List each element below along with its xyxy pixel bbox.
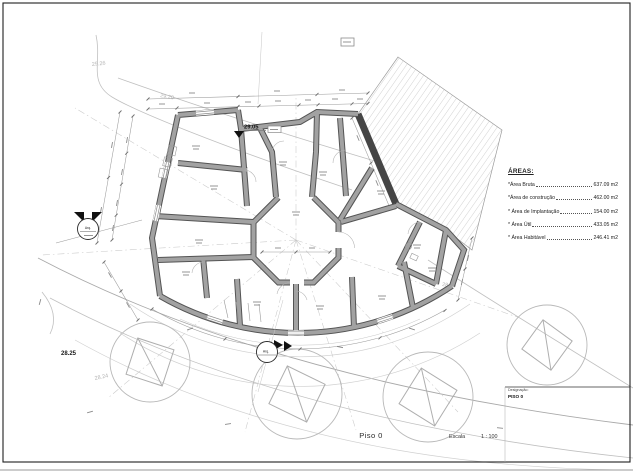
spot-elevation-label: 28.25	[61, 351, 77, 357]
section-marker: Arq.	[74, 212, 102, 240]
dotted-leader	[556, 199, 592, 200]
contour-label-2920: 29.20	[160, 93, 175, 101]
section-marker: Arq.	[257, 300, 293, 392]
dotted-leader	[547, 239, 593, 240]
area-label: * Área de Implantação	[508, 209, 559, 215]
tree	[507, 305, 587, 385]
area-value: 154.00 m2	[593, 209, 618, 215]
level-value: 29.05	[244, 125, 259, 131]
contour-label-2926: 29.26	[92, 61, 106, 68]
areas-row: * Área Habitável 246.41 m2	[508, 235, 618, 241]
plan-title: Piso 0	[336, 431, 406, 440]
areas-row: * Área Útil 433.05 m2	[508, 222, 618, 228]
area-value: 462.00 m2	[593, 195, 618, 201]
area-value: 246.41 m2	[593, 235, 618, 241]
areas-row: *Área de construção 462.00 m2	[508, 195, 618, 201]
areas-row: *Área Bruta 637.09 m2	[508, 182, 618, 188]
dotted-leader	[532, 226, 592, 227]
section-marker-label: Arq.	[263, 350, 269, 354]
title-block-value: PISO 0	[508, 394, 523, 399]
area-value: 637.09 m2	[593, 182, 618, 188]
drawing-sheet: 29.26 29.20 28.70 28.24 28.25	[0, 0, 633, 475]
area-label: *Área de construção	[508, 195, 555, 201]
area-value: 433.05 m2	[593, 222, 618, 228]
areas-table: ÁREAS: *Área Bruta 637.09 m2 *Área de co…	[508, 168, 618, 248]
dotted-leader	[560, 213, 592, 214]
scale-label: Escala	[449, 434, 465, 440]
area-label: *Área Bruta	[508, 182, 535, 188]
window	[196, 111, 214, 115]
tree	[383, 352, 473, 442]
window	[288, 332, 304, 334]
area-label: * Área Útil	[508, 222, 531, 228]
contour-label-2824: 28.24	[94, 373, 109, 382]
areas-row: * Área de Implantação 154.00 m2	[508, 209, 618, 215]
section-marker-label: Arq.	[85, 226, 91, 230]
tree	[110, 322, 190, 402]
scale-value: 1 : 100	[481, 434, 498, 440]
title-block-label: Designação:	[508, 388, 529, 392]
dotted-leader	[536, 186, 593, 187]
areas-title: ÁREAS:	[508, 168, 618, 175]
area-label: * Área Habitável	[508, 235, 546, 241]
window	[377, 315, 393, 322]
